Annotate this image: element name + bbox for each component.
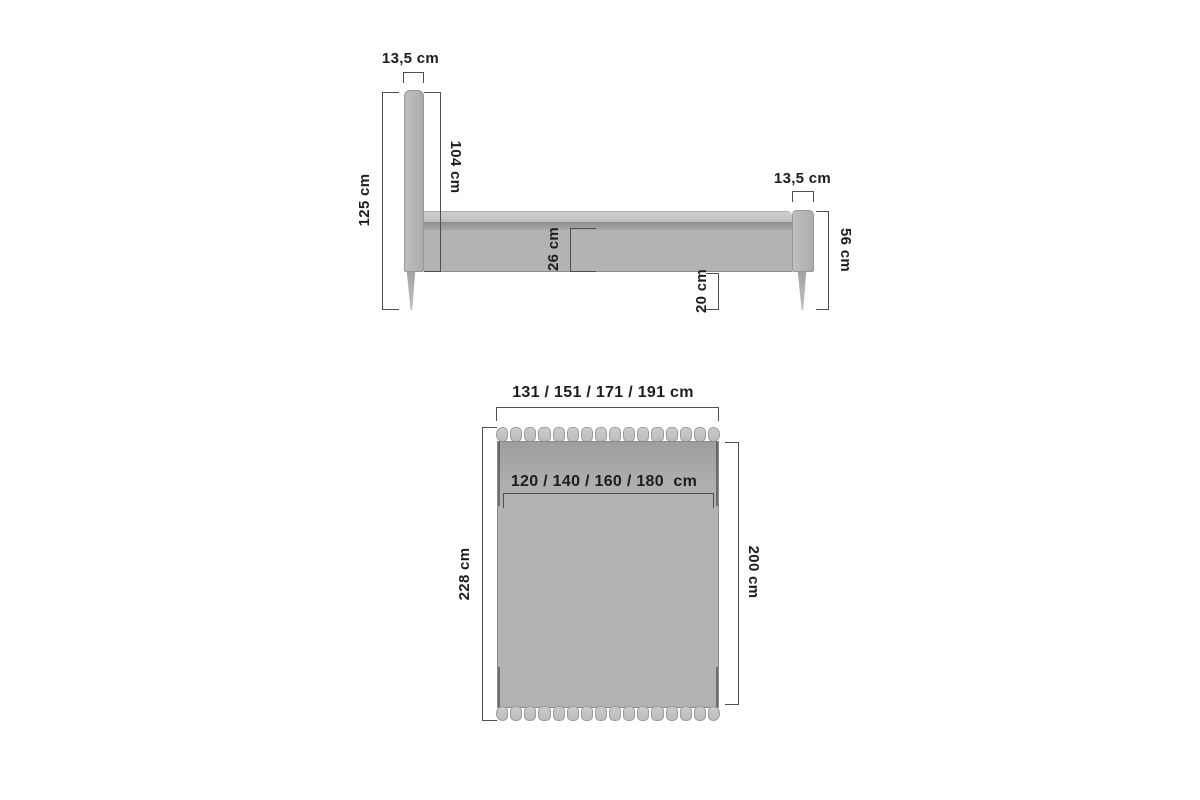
dim-bracket-total-height <box>382 92 399 310</box>
footboard-slat-row <box>496 706 720 721</box>
dim-bracket-footboard-thickness <box>792 191 814 202</box>
dim-bracket-mattress-width <box>503 493 714 508</box>
slat <box>694 427 706 442</box>
slat <box>524 706 536 721</box>
dim-bracket-footboard-height <box>816 211 829 310</box>
slat <box>680 706 692 721</box>
slat <box>637 427 649 442</box>
slat <box>567 706 579 721</box>
slat <box>609 427 621 442</box>
slat <box>510 706 522 721</box>
side-rail-shadow-bottom-right <box>716 667 718 707</box>
slat <box>524 427 536 442</box>
dim-label-footboard-height: 56 cm <box>836 205 854 295</box>
dim-label-mattress-length: 200 cm <box>744 527 762 617</box>
slat <box>567 427 579 442</box>
slat <box>708 706 720 721</box>
dim-bracket-frame-height <box>570 228 596 272</box>
slat <box>666 706 678 721</box>
slat <box>651 706 663 721</box>
slat <box>595 706 607 721</box>
slat <box>538 706 550 721</box>
bed-dimensions-diagram: 13,5 cm 125 cm 104 cm 26 cm 20 cm 13,5 c… <box>0 0 1200 800</box>
dim-label-headboard-thickness: 13,5 cm <box>368 50 453 68</box>
dim-bracket-mattress-length <box>725 442 739 705</box>
slat <box>595 427 607 442</box>
dim-label-mattress-width: 120 / 140 / 160 / 180 cm <box>464 473 744 491</box>
dim-label-total-height: 125 cm <box>356 155 374 245</box>
slat <box>538 427 550 442</box>
dim-bracket-headboard-thickness <box>403 72 424 83</box>
dim-bracket-overall-width <box>496 407 719 421</box>
dim-label-overall-length: 228 cm <box>456 529 474 619</box>
slat <box>651 427 663 442</box>
slat <box>553 427 565 442</box>
slat <box>510 427 522 442</box>
mattress-side-profile <box>424 211 792 222</box>
back-leg <box>797 272 807 310</box>
slat <box>609 706 621 721</box>
slat <box>708 427 720 442</box>
slat <box>623 706 635 721</box>
front-leg <box>406 272 416 310</box>
slat <box>496 706 508 721</box>
slat <box>581 706 593 721</box>
dim-bracket-headboard-height <box>424 92 441 272</box>
slat <box>680 427 692 442</box>
slat <box>581 427 593 442</box>
slat <box>637 706 649 721</box>
dim-label-footboard-thickness: 13,5 cm <box>760 170 845 188</box>
dim-label-headboard-height: 104 cm <box>446 122 464 212</box>
footboard-side-profile <box>792 210 814 272</box>
slat <box>694 706 706 721</box>
bed-frame-side-profile <box>424 230 792 272</box>
dim-label-frame-height: 26 cm <box>545 204 563 294</box>
side-rail-shadow-bottom-left <box>498 667 500 707</box>
slat <box>623 427 635 442</box>
headboard-slat-row <box>496 427 720 442</box>
dim-bracket-overall-length <box>482 427 497 721</box>
dim-label-clearance: 20 cm <box>693 246 711 336</box>
slat <box>496 427 508 442</box>
slat <box>666 427 678 442</box>
slat <box>553 706 565 721</box>
mattress-shadow-line <box>424 222 792 230</box>
dim-label-overall-width: 131 / 151 / 171 / 191 cm <box>463 384 743 402</box>
headboard-side-profile <box>404 90 424 272</box>
